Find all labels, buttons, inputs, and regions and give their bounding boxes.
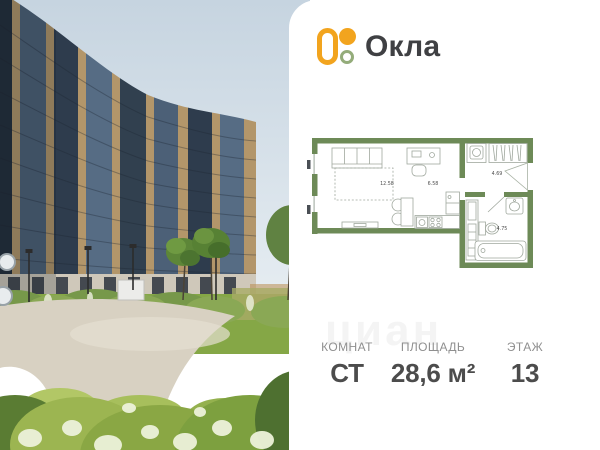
round-sign — [0, 287, 12, 305]
floor-plan: 12.58 6.58 4.69 4.75 — [306, 138, 534, 270]
washing-machine — [467, 144, 486, 163]
logo-pill-icon — [317, 28, 338, 65]
area-label-living: 12.58 — [380, 181, 394, 187]
stat-floor-label: ЭТАЖ — [485, 340, 565, 354]
sofa — [332, 148, 382, 168]
stats-row: КОМНАТ СТ ПЛОЩАДЬ 28,6 м² ЭТАЖ 13 — [289, 340, 600, 410]
stat-floor-value: 13 — [485, 358, 565, 389]
brand-logo: Окла — [289, 0, 600, 90]
brand-name: Окла — [365, 27, 440, 67]
listing-card[interactable]: Окла — [0, 0, 600, 450]
kitchen-counter — [415, 216, 460, 229]
building-photo — [0, 0, 310, 450]
stat-floor: ЭТАЖ 13 — [485, 340, 565, 389]
desk — [407, 148, 440, 176]
stat-area: ПЛОЩАДЬ 28,6 м² — [373, 340, 493, 389]
bathroom-sink — [506, 198, 523, 214]
sign-board — [118, 280, 144, 300]
wardrobe — [489, 144, 527, 163]
area-label-hallway: 4.69 — [492, 171, 503, 177]
toilet — [479, 222, 499, 235]
stat-area-label: ПЛОЩАДЬ — [373, 340, 493, 354]
bathroom-door — [488, 197, 504, 212]
bathtub — [475, 241, 526, 261]
dresser — [342, 222, 378, 228]
round-sign — [0, 254, 15, 270]
logo-ring-icon — [340, 50, 354, 64]
dining-table — [392, 198, 413, 226]
fridge — [446, 192, 460, 214]
area-label-bathroom: 4.75 — [497, 226, 508, 232]
logo-dot-icon — [339, 28, 356, 45]
entrance-door — [505, 163, 528, 190]
area-label-kitchen: 6.58 — [428, 181, 439, 187]
stat-area-value: 28,6 м² — [373, 358, 493, 389]
info-panel: Окла — [289, 0, 600, 450]
